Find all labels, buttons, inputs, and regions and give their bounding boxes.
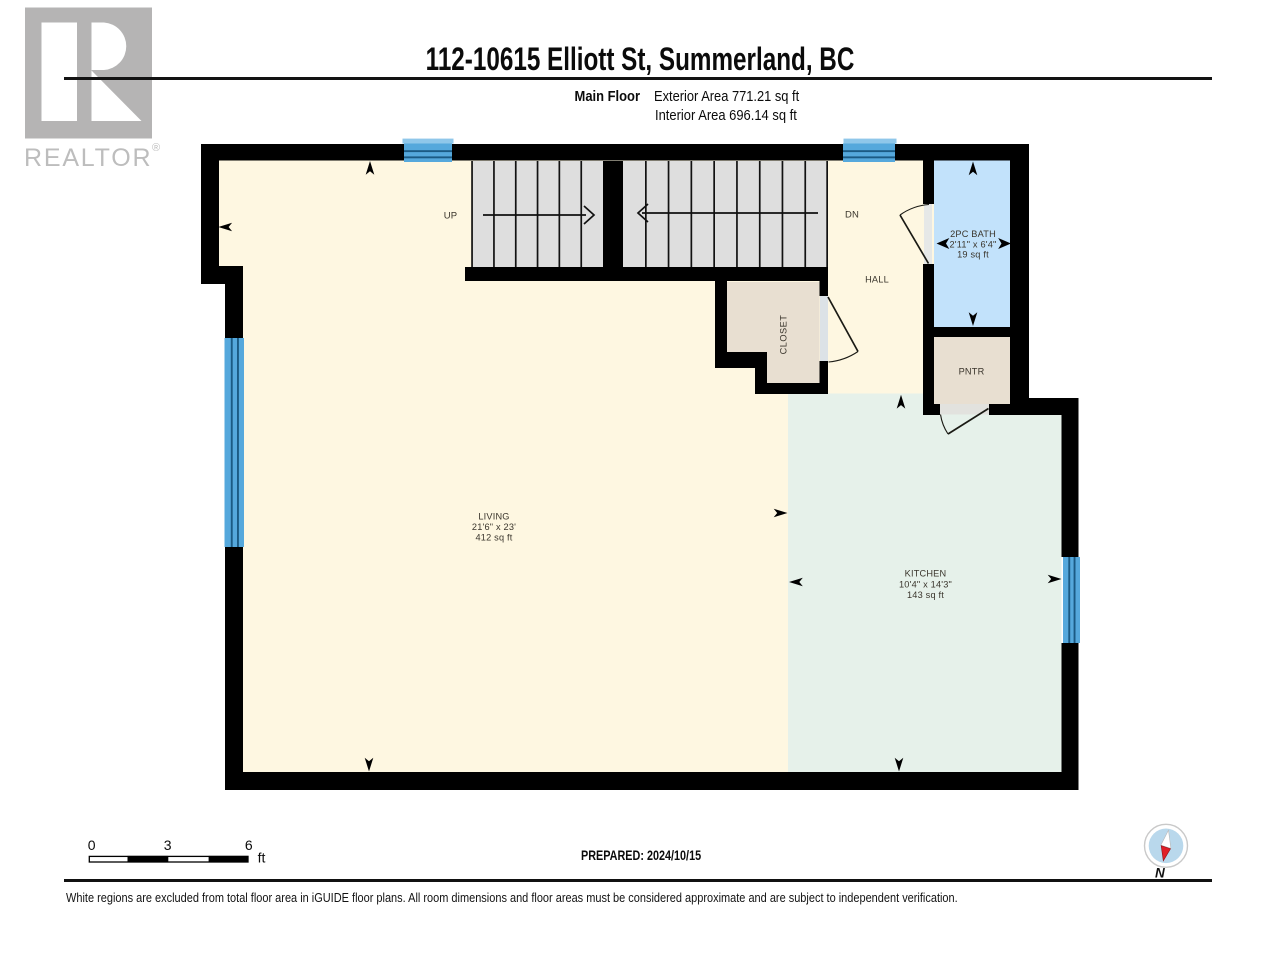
svg-text:143 sq ft: 143 sq ft xyxy=(907,590,944,600)
svg-text:ft: ft xyxy=(258,850,266,866)
svg-text:21'6" x 23': 21'6" x 23' xyxy=(472,522,516,532)
svg-text:412 sq ft: 412 sq ft xyxy=(475,532,512,542)
svg-text:HALL: HALL xyxy=(865,275,889,285)
svg-text:3: 3 xyxy=(164,837,172,853)
svg-text:2'11" x 6'4": 2'11" x 6'4" xyxy=(950,240,997,250)
svg-text:LIVING: LIVING xyxy=(478,511,509,521)
svg-text:CLOSET: CLOSET xyxy=(779,315,789,355)
svg-text:10'4" x 14'3": 10'4" x 14'3" xyxy=(899,579,952,589)
svg-text:0: 0 xyxy=(88,837,96,853)
svg-text:2PC BATH: 2PC BATH xyxy=(950,229,996,239)
svg-text:PNTR: PNTR xyxy=(959,367,985,377)
svg-text:UP: UP xyxy=(444,211,458,222)
svg-text:DN: DN xyxy=(845,210,859,221)
svg-text:6: 6 xyxy=(245,837,253,853)
svg-text:19 sq ft: 19 sq ft xyxy=(957,250,989,260)
svg-text:KITCHEN: KITCHEN xyxy=(905,568,947,578)
